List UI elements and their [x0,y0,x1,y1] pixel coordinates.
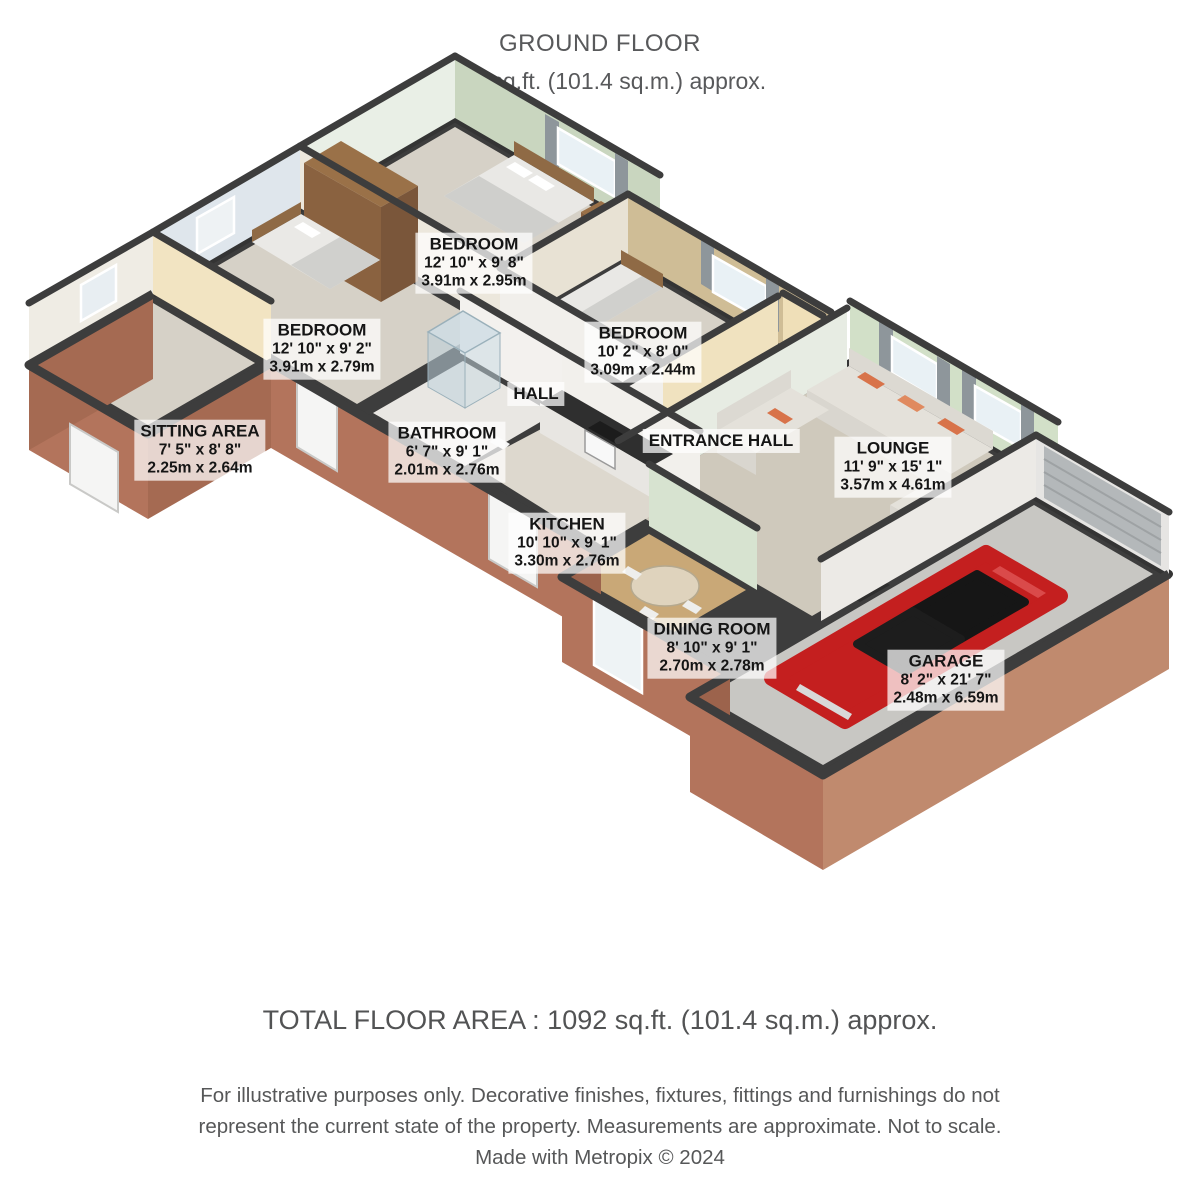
disclaimer-line-2: represent the current state of the prope… [0,1111,1200,1142]
disclaimer-line-1: For illustrative purposes only. Decorati… [0,1080,1200,1111]
floorplan-page: GROUND FLOOR 1092 sq.ft. (101.4 sq.m.) a… [0,0,1200,1200]
metropix-credit: Made with Metropix © 2024 [0,1142,1200,1173]
total-floor-area: TOTAL FLOOR AREA : 1092 sq.ft. (101.4 sq… [0,1005,1200,1036]
disclaimer-text: For illustrative purposes only. Decorati… [0,1080,1200,1173]
